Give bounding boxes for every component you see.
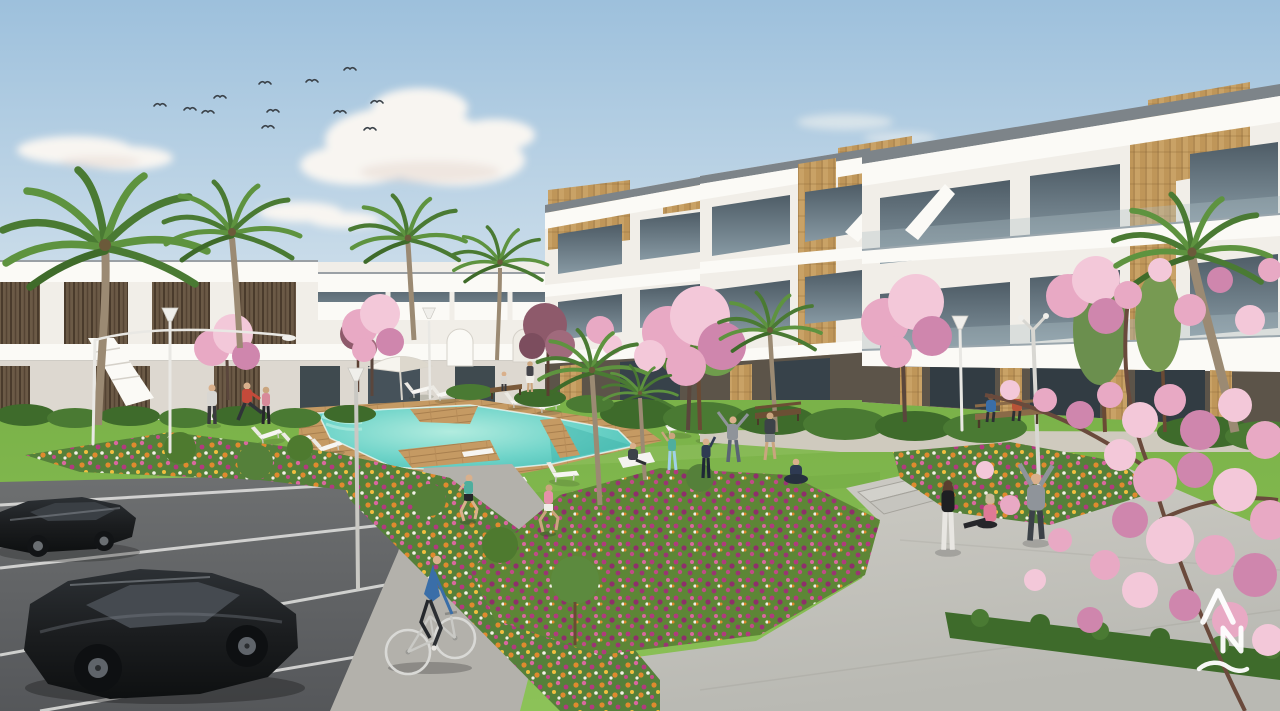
architectural-render: Sunny 3D architectural render of a new-b… [0,0,1280,711]
render-image: Sunny 3D architectural render of a new-b… [0,0,1280,711]
car-sedan [0,497,140,562]
